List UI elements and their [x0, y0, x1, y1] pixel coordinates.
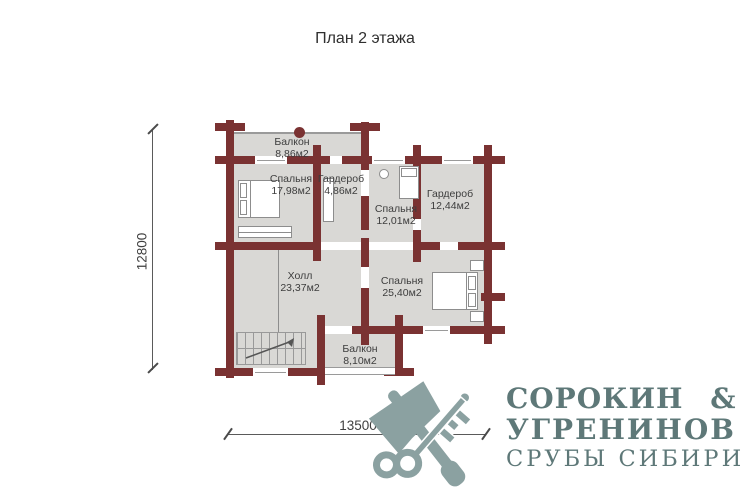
- room-name: Балкон: [325, 343, 395, 355]
- stool: [379, 169, 389, 179]
- wall-log-end: [395, 315, 403, 345]
- window: [423, 326, 450, 334]
- logo-line-3: СРУБЫ СИБИРИ: [506, 445, 752, 473]
- wall-log-end: [413, 230, 421, 262]
- wall-right: [484, 145, 492, 334]
- stairs-direction-arrow: [240, 334, 302, 362]
- room-area: 12,44м2: [415, 200, 485, 212]
- wall-log-end: [215, 156, 245, 164]
- wall-log-end: [361, 238, 369, 250]
- room-area: 12,01м2: [361, 215, 431, 227]
- door-opening: [440, 242, 458, 250]
- pillow: [468, 293, 476, 307]
- pillow: [240, 183, 247, 198]
- dimension-value-vertical: 12800: [135, 222, 150, 282]
- room-area: 8,10м2: [325, 355, 395, 367]
- room-label-balcony-bottom: Балкон 8,10м2: [325, 343, 395, 367]
- page-title: План 2 этажа: [280, 30, 450, 48]
- company-logo-text: СОРОКИН & УГРЕНИНОВ СРУБЫ СИБИРИ: [506, 383, 752, 473]
- room-label-bedroom-3: Спальня 25,40м2: [367, 275, 437, 299]
- room-area: 25,40м2: [367, 287, 437, 299]
- room-area: 4,86м2: [306, 185, 376, 197]
- wall-log-end: [313, 231, 321, 261]
- nightstand: [470, 260, 484, 271]
- dimension-line-vertical: [152, 130, 153, 370]
- wall-log-end: [477, 242, 505, 250]
- wall-hall-bedroom-upper: [361, 250, 369, 267]
- door-opening: [325, 326, 352, 334]
- logo-line-2: УГРЕНИНОВ: [506, 414, 752, 445]
- window: [372, 156, 405, 164]
- wall-log-end: [215, 242, 245, 250]
- dimension-tick: [147, 362, 158, 373]
- nightstand: [470, 311, 484, 322]
- room-name: Балкон: [257, 136, 327, 148]
- wall-log-end: [481, 293, 505, 301]
- room-label-balcony-top: Балкон 8,86м2: [257, 136, 327, 160]
- room-area: 8,86м2: [257, 148, 327, 160]
- wall-log-end: [477, 326, 505, 334]
- wall-log-end: [317, 315, 325, 345]
- bed-line: [250, 180, 251, 218]
- room-area: 23,37м2: [265, 282, 335, 294]
- room-name: Гардероб: [306, 173, 376, 185]
- window: [253, 368, 288, 376]
- wall-log-end: [484, 334, 492, 344]
- wall-log-end: [215, 368, 245, 376]
- room-name: Спальня: [367, 275, 437, 287]
- pillow: [240, 200, 247, 215]
- room-name: Гардероб: [415, 188, 485, 200]
- floor-plan-page: План 2 этажа: [0, 0, 753, 502]
- pillow: [401, 168, 417, 177]
- room-label-wardrobe-1: Гардероб 4,86м2: [306, 173, 376, 197]
- axe-and-key-icon: [352, 374, 504, 502]
- room-label-wardrobe-2: Гардероб 12,44м2: [415, 188, 485, 212]
- room-label-hall: Холл 23,37м2: [265, 270, 335, 294]
- room-name: Холл: [265, 270, 335, 282]
- dimension-tick: [147, 123, 158, 134]
- bed-line: [466, 272, 467, 310]
- closet-line: [238, 232, 292, 233]
- door-opening: [330, 156, 342, 164]
- wall-log-end: [317, 357, 325, 385]
- window: [442, 156, 473, 164]
- wall-log-end: [361, 315, 369, 345]
- wall-log-end: [477, 156, 505, 164]
- wall-log-end: [350, 123, 380, 131]
- pillow: [468, 276, 476, 290]
- wall-log-end: [215, 123, 245, 131]
- logo-line-1: СОРОКИН &: [506, 383, 752, 414]
